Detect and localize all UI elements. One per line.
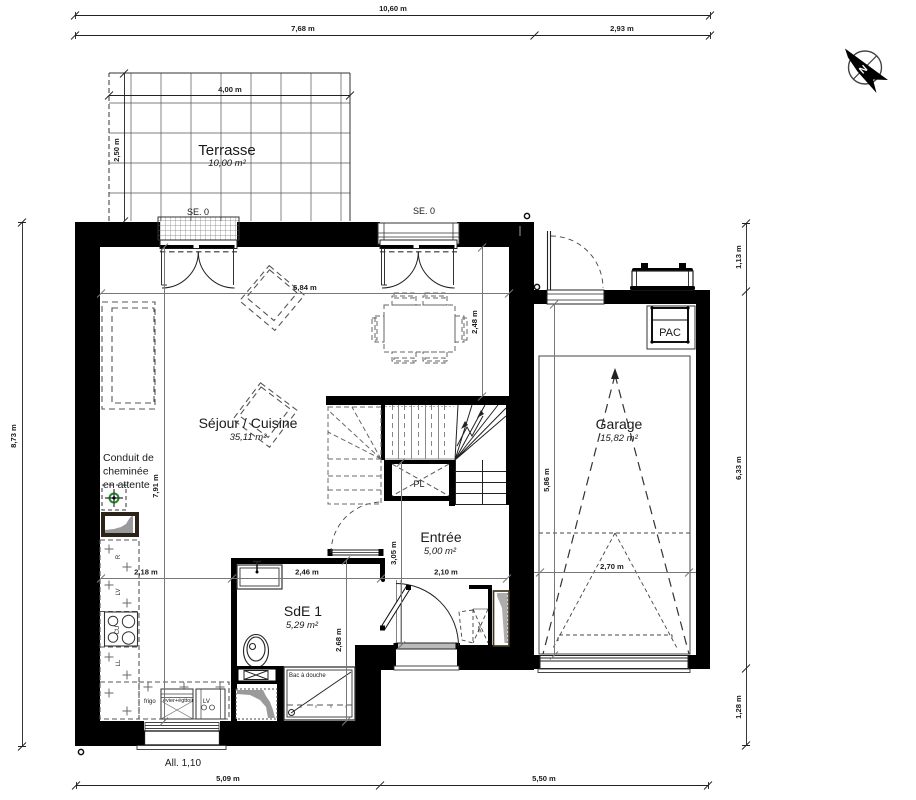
svg-text:Séjour / Cuisine: Séjour / Cuisine <box>199 415 298 431</box>
svg-text:All. 1,10: All. 1,10 <box>165 758 202 769</box>
svg-text:8,73 m: 8,73 m <box>9 424 18 448</box>
svg-text:2,50 m: 2,50 m <box>112 138 121 162</box>
svg-text:7,68 m: 7,68 m <box>291 24 315 33</box>
svg-text:10,60 m: 10,60 m <box>379 4 407 13</box>
svg-text:6,33 m: 6,33 m <box>734 456 743 480</box>
svg-text:Terrasse: Terrasse <box>198 142 256 159</box>
svg-text:LV: LV <box>203 699 210 705</box>
svg-text:7,91 m: 7,91 m <box>151 474 160 498</box>
svg-text:5,00 m²: 5,00 m² <box>424 546 457 557</box>
svg-text:35,11 m²: 35,11 m² <box>230 432 268 443</box>
svg-text:10,00 m²: 10,00 m² <box>208 158 246 169</box>
svg-text:Bac à douche: Bac à douche <box>289 673 326 679</box>
svg-text:R: R <box>116 554 122 559</box>
svg-text:évier+égttoir: évier+égttoir <box>163 698 194 704</box>
svg-text:3,05 m: 3,05 m <box>389 541 398 565</box>
svg-text:PAC: PAC <box>659 327 681 339</box>
svg-text:2,10 m: 2,10 m <box>434 568 458 577</box>
svg-text:1,13 m: 1,13 m <box>734 245 743 269</box>
svg-text:Conduit de: Conduit de <box>103 452 154 464</box>
svg-text:Entrée: Entrée <box>420 529 461 545</box>
svg-text:5,86 m: 5,86 m <box>542 468 551 492</box>
svg-text:2,68 m: 2,68 m <box>334 628 343 652</box>
svg-text:15,82 m²: 15,82 m² <box>600 433 638 444</box>
svg-text:SdE 1: SdE 1 <box>284 603 322 619</box>
svg-text:PL: PL <box>413 479 424 489</box>
svg-text:SE. 0: SE. 0 <box>187 207 209 217</box>
svg-text:frigo: frigo <box>144 699 156 705</box>
svg-text:5,50 m: 5,50 m <box>532 774 556 783</box>
svg-text:CU: CU <box>115 626 121 635</box>
svg-text:5,29 m²: 5,29 m² <box>286 620 319 631</box>
svg-text:1,28 m: 1,28 m <box>734 695 743 719</box>
svg-text:cheminée: cheminée <box>103 466 149 478</box>
svg-text:5,09 m: 5,09 m <box>216 774 240 783</box>
svg-text:2,70 m: 2,70 m <box>600 562 624 571</box>
svg-text:LL: LL <box>116 659 122 666</box>
svg-text:2,18 m: 2,18 m <box>134 568 158 577</box>
svg-text:LV: LV <box>116 589 122 596</box>
svg-text:6,84 m: 6,84 m <box>293 283 317 292</box>
svg-text:2,93 m: 2,93 m <box>610 24 634 33</box>
svg-text:2,46 m: 2,46 m <box>295 568 319 577</box>
svg-text:2,48 m: 2,48 m <box>470 310 479 334</box>
svg-text:4,00 m: 4,00 m <box>218 85 242 94</box>
svg-text:SE. 0: SE. 0 <box>413 206 435 216</box>
svg-text:pm: pm <box>477 626 483 633</box>
